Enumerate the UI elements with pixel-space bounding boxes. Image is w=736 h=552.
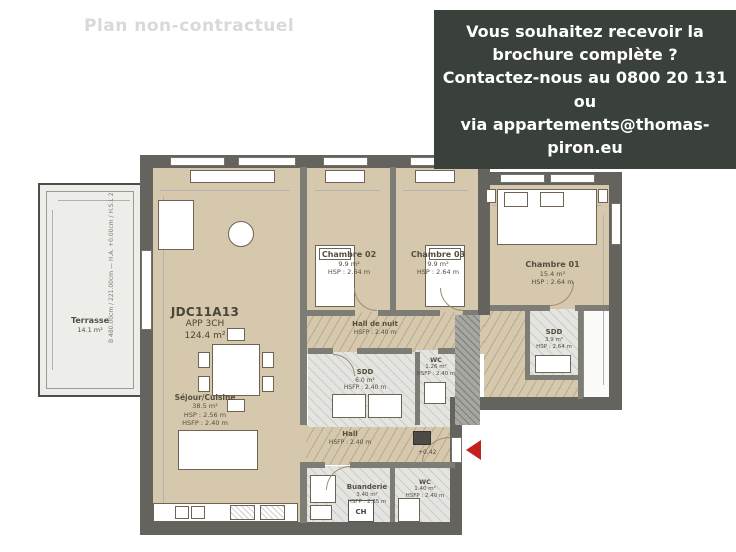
washbasin — [368, 394, 402, 418]
interior-wall-sdd01-right — [578, 307, 583, 399]
room-height: HSFP : 2.40 m — [398, 493, 452, 500]
nightstand — [598, 189, 608, 203]
apartment-label: JDC11A13 APP 3CH 124.4 m² — [150, 305, 260, 342]
chair — [262, 352, 274, 368]
info-line: Contactez-nous au 0800 20 131 ou — [442, 66, 728, 112]
dimension-line — [315, 190, 380, 191]
hall-cabinet — [413, 431, 431, 445]
room-name: SDD — [330, 368, 400, 377]
room-name: SDD — [527, 328, 581, 337]
room-area: 14.1 m² — [40, 326, 140, 334]
terrace-inner-line — [46, 191, 134, 389]
window-chambre02 — [323, 157, 368, 166]
cooktop — [230, 505, 255, 520]
room-label-wc-hall: WC 1.40 m² HSFP : 2.40 m — [398, 478, 452, 500]
room-name: WC — [398, 478, 452, 486]
room-height: HSP : 2.64 m — [398, 268, 478, 276]
dining-table — [212, 344, 260, 396]
interior-wall-ch01 — [490, 305, 550, 311]
apartment-area: 124.4 m² — [150, 331, 260, 343]
room-name: Séjour/Cuisine — [150, 393, 260, 402]
round-table — [228, 221, 254, 247]
kitchen-sink — [175, 506, 189, 519]
room-area: 1.26 m² — [414, 364, 458, 371]
desk-chambre03 — [415, 170, 455, 183]
room-area: 6.0 m² — [330, 377, 400, 385]
contact-info-box: Vous souhaitez recevoir la brochure comp… — [434, 10, 736, 169]
interior-wall-wc-top — [438, 348, 455, 354]
wall-right-lower — [450, 410, 462, 535]
room-area: 9.9 m² — [309, 260, 389, 268]
pillow — [504, 192, 528, 207]
room-area: 3.9 m² — [527, 337, 581, 344]
apartment-type: APP 3CH — [150, 319, 260, 331]
room-label-chambre03: Chambre 03 9.9 m² HSP : 2.64 m — [398, 250, 478, 276]
room-label-wc-centrale: WC 1.26 m² HSFP : 2.40 m — [414, 356, 458, 378]
closet-chambre01 — [583, 309, 611, 399]
room-height: HSP : 2.64 m — [495, 278, 610, 286]
room-area: 1.40 m² — [398, 486, 452, 493]
dimension-line — [52, 210, 53, 370]
interior-wall-ch02-ch03 — [390, 167, 396, 315]
pillow — [540, 192, 564, 207]
window-sejour — [170, 157, 225, 166]
chair — [198, 376, 210, 392]
room-height: HSFP : 2.40 m — [150, 419, 260, 427]
interior-wall-corridor — [300, 310, 355, 316]
info-line: Vous souhaitez recevoir la — [442, 20, 728, 43]
chair — [198, 352, 210, 368]
wall-bottom — [140, 522, 462, 535]
laundry-unit — [310, 505, 332, 520]
cooktop — [260, 505, 285, 520]
room-height: HSP : 2.64 m — [309, 268, 389, 276]
room-height: HSFP : 2.40 m — [330, 384, 400, 392]
floor-plan-page: { "watermark": "Plan non-contractuel", "… — [0, 0, 736, 552]
room-name: Chambre 02 — [309, 250, 389, 260]
washbasin-sdd01 — [535, 355, 571, 373]
window-chambre01 — [550, 174, 595, 183]
kitchen-tall-unit — [158, 200, 194, 250]
interior-wall-sdd-top — [357, 348, 412, 354]
toilet-wc-centrale — [424, 382, 446, 404]
interior-wall-sdd01-bottom — [525, 375, 583, 380]
kitchen-sink — [191, 506, 205, 519]
apartment-code: JDC11A13 — [150, 305, 260, 319]
room-name: Chambre 03 — [398, 250, 478, 260]
room-height: HSP : 2.56 m — [150, 411, 260, 419]
dimension-line — [403, 190, 468, 191]
window-chambre01 — [500, 174, 545, 183]
washbasin — [332, 394, 366, 418]
interior-wall-corridor — [378, 310, 440, 316]
entrance-door-opening — [451, 437, 462, 463]
room-name: Hall — [310, 430, 390, 439]
room-height: HSFP : 2.40 m — [310, 439, 390, 447]
interior-wall-hall-bottom — [300, 462, 325, 468]
level-marker: +0.42 — [418, 449, 436, 456]
room-height: HSP : 2.64 m — [527, 344, 581, 351]
chair — [262, 376, 274, 392]
room-label-chambre01: Chambre 01 15.4 m² HSP : 2.64 m — [495, 260, 610, 286]
nightstand — [486, 189, 496, 203]
room-label-chambre02: Chambre 02 9.9 m² HSP : 2.64 m — [309, 250, 389, 276]
interior-wall-sejour-lower — [300, 462, 307, 523]
window-sejour — [238, 157, 296, 166]
room-name: Hall de nuit — [330, 320, 420, 329]
room-label-hall: Hall HSFP : 2.40 m — [310, 430, 390, 446]
entrance-arrow-icon — [466, 440, 481, 460]
room-label-sejour: Séjour/Cuisine 38.5 m² HSP : 2.56 m HSFP… — [150, 393, 260, 427]
room-area: 38.5 m² — [150, 402, 260, 410]
interior-wall-sejour-upper — [300, 167, 307, 425]
room-label-sdd-chambre01: SDD 3.9 m² HSP : 2.64 m — [527, 328, 581, 351]
room-name: Terrasse — [40, 316, 140, 326]
room-label-buanderie: Buanderie 3.40 m² HSFP : 2.35 m — [332, 483, 402, 506]
wall-left — [140, 155, 153, 535]
desk-chambre02 — [325, 170, 365, 183]
room-name: Buanderie — [332, 483, 402, 492]
room-area: 15.4 m² — [495, 270, 610, 278]
window-chambre01-side — [611, 203, 621, 245]
room-name: WC — [414, 356, 458, 364]
room-area: 3.40 m² — [332, 492, 402, 499]
room-height: HSFP : 2.35 m — [332, 499, 402, 506]
info-line-email: via appartements@thomas-piron.eu — [442, 113, 728, 159]
room-label-sdd-centrale: SDD 6.0 m² HSFP : 2.40 m — [330, 368, 400, 392]
sideboard — [190, 170, 275, 183]
room-height: HSFP : 2.40 m — [414, 371, 458, 378]
room-area: 9.9 m² — [398, 260, 478, 268]
room-label-terrasse: Terrasse 14.1 m² — [40, 316, 140, 334]
wall-mid-vertical — [478, 155, 490, 315]
room-height: HSFP : 2.40 m — [330, 329, 420, 337]
interior-wall-sdd-top — [308, 348, 333, 354]
sofa — [178, 430, 258, 470]
dimension-line — [160, 190, 290, 191]
room-label-hall-de-nuit: Hall de nuit HSFP : 2.40 m — [330, 320, 420, 336]
room-name: Chambre 01 — [495, 260, 610, 270]
technical-duct — [455, 315, 480, 425]
watermark-text: Plan non-contractuel — [84, 16, 294, 36]
info-line: brochure complète ? — [442, 43, 728, 66]
dimension-line — [603, 215, 604, 385]
